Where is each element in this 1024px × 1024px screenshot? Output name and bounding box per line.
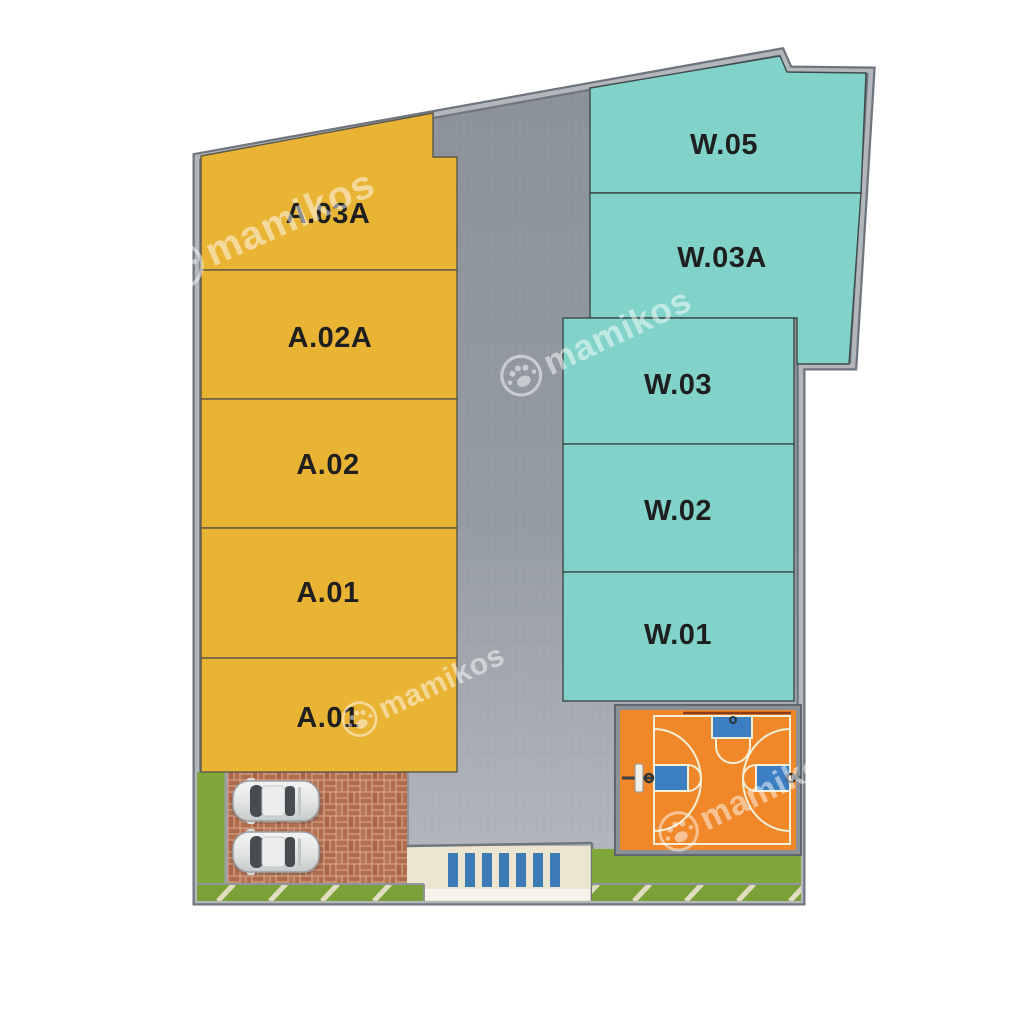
court-key-left bbox=[654, 765, 688, 791]
unit-label-w02: W.02 bbox=[644, 495, 712, 527]
unit-label-a02: A.02 bbox=[296, 449, 359, 481]
unit-label-a02a: A.02A bbox=[288, 322, 373, 354]
grass-strip-bottom-left-hatch-marks bbox=[197, 884, 424, 901]
site-plan-image: A.03A A.02A A.02 A.01 A.01 W.05 W.03A W.… bbox=[0, 0, 1024, 1024]
grass-strip-right-hatch-marks bbox=[592, 884, 801, 901]
crosswalk-stripe bbox=[482, 853, 492, 887]
car-icon bbox=[231, 829, 323, 875]
grass-strip-left bbox=[197, 772, 226, 901]
crosswalk-stripe bbox=[516, 853, 526, 887]
court-key-top bbox=[712, 716, 752, 738]
unit-label-a01-upper: A.01 bbox=[296, 577, 359, 609]
crosswalk-stripe bbox=[448, 853, 458, 887]
unit-label-w03: W.03 bbox=[644, 369, 712, 401]
sidewalk-curb bbox=[409, 889, 590, 900]
crosswalk-stripe bbox=[465, 853, 475, 887]
unit-label-w03a: W.03A bbox=[677, 242, 767, 274]
car-icon bbox=[231, 778, 323, 824]
crosswalk-stripe bbox=[533, 853, 543, 887]
unit-label-w05: W.05 bbox=[690, 129, 758, 161]
crosswalk-stripe bbox=[550, 853, 560, 887]
crosswalk-stripe bbox=[499, 853, 509, 887]
unit-label-w01: W.01 bbox=[644, 619, 712, 651]
